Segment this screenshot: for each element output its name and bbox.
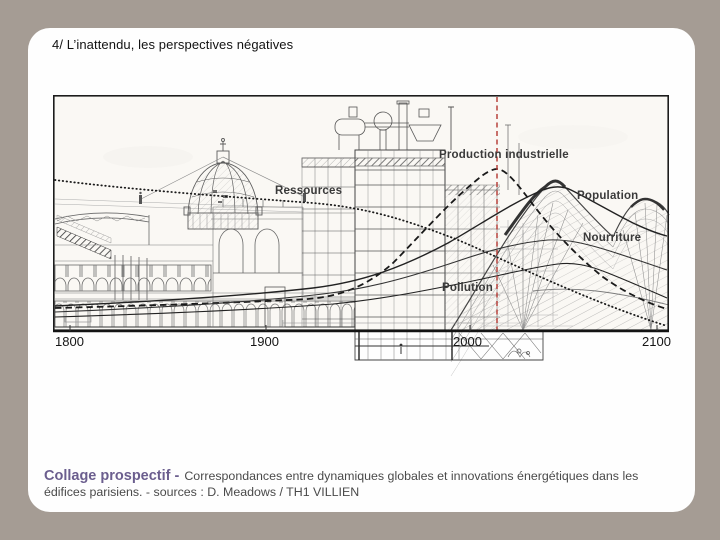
label-population: Population — [577, 190, 638, 202]
caption-body-line2: édifices parisiens. - sources : D. Meado… — [44, 485, 359, 499]
axis-year-1900: 1900 — [250, 334, 279, 349]
axis-year-2000: 2000 — [453, 334, 482, 349]
label-production-industrielle: Production industrielle — [439, 149, 569, 161]
collage-figure: Ressources Production industrielle Popul… — [53, 95, 669, 367]
label-nourriture: Nourriture — [583, 232, 641, 244]
axis-year-2100: 2100 — [642, 334, 671, 349]
caption-lead: Collage prospectif - — [44, 468, 179, 484]
basement-section — [355, 332, 543, 360]
label-pollution: Pollution — [442, 282, 493, 294]
caption-body-line1: Correspondances entre dynamiques globale… — [184, 469, 638, 483]
figure-caption: Collage prospectif -Correspondances entr… — [44, 468, 668, 500]
page-background: 4/ L’inattendu, les perspectives négativ… — [0, 0, 720, 540]
slide-title: 4/ L’inattendu, les perspectives négativ… — [52, 37, 293, 52]
axis-year-1800: 1800 — [55, 334, 84, 349]
collage-drawing — [53, 95, 669, 367]
slide-card: 4/ L’inattendu, les perspectives négativ… — [28, 28, 695, 512]
label-ressources: Ressources — [275, 185, 342, 197]
